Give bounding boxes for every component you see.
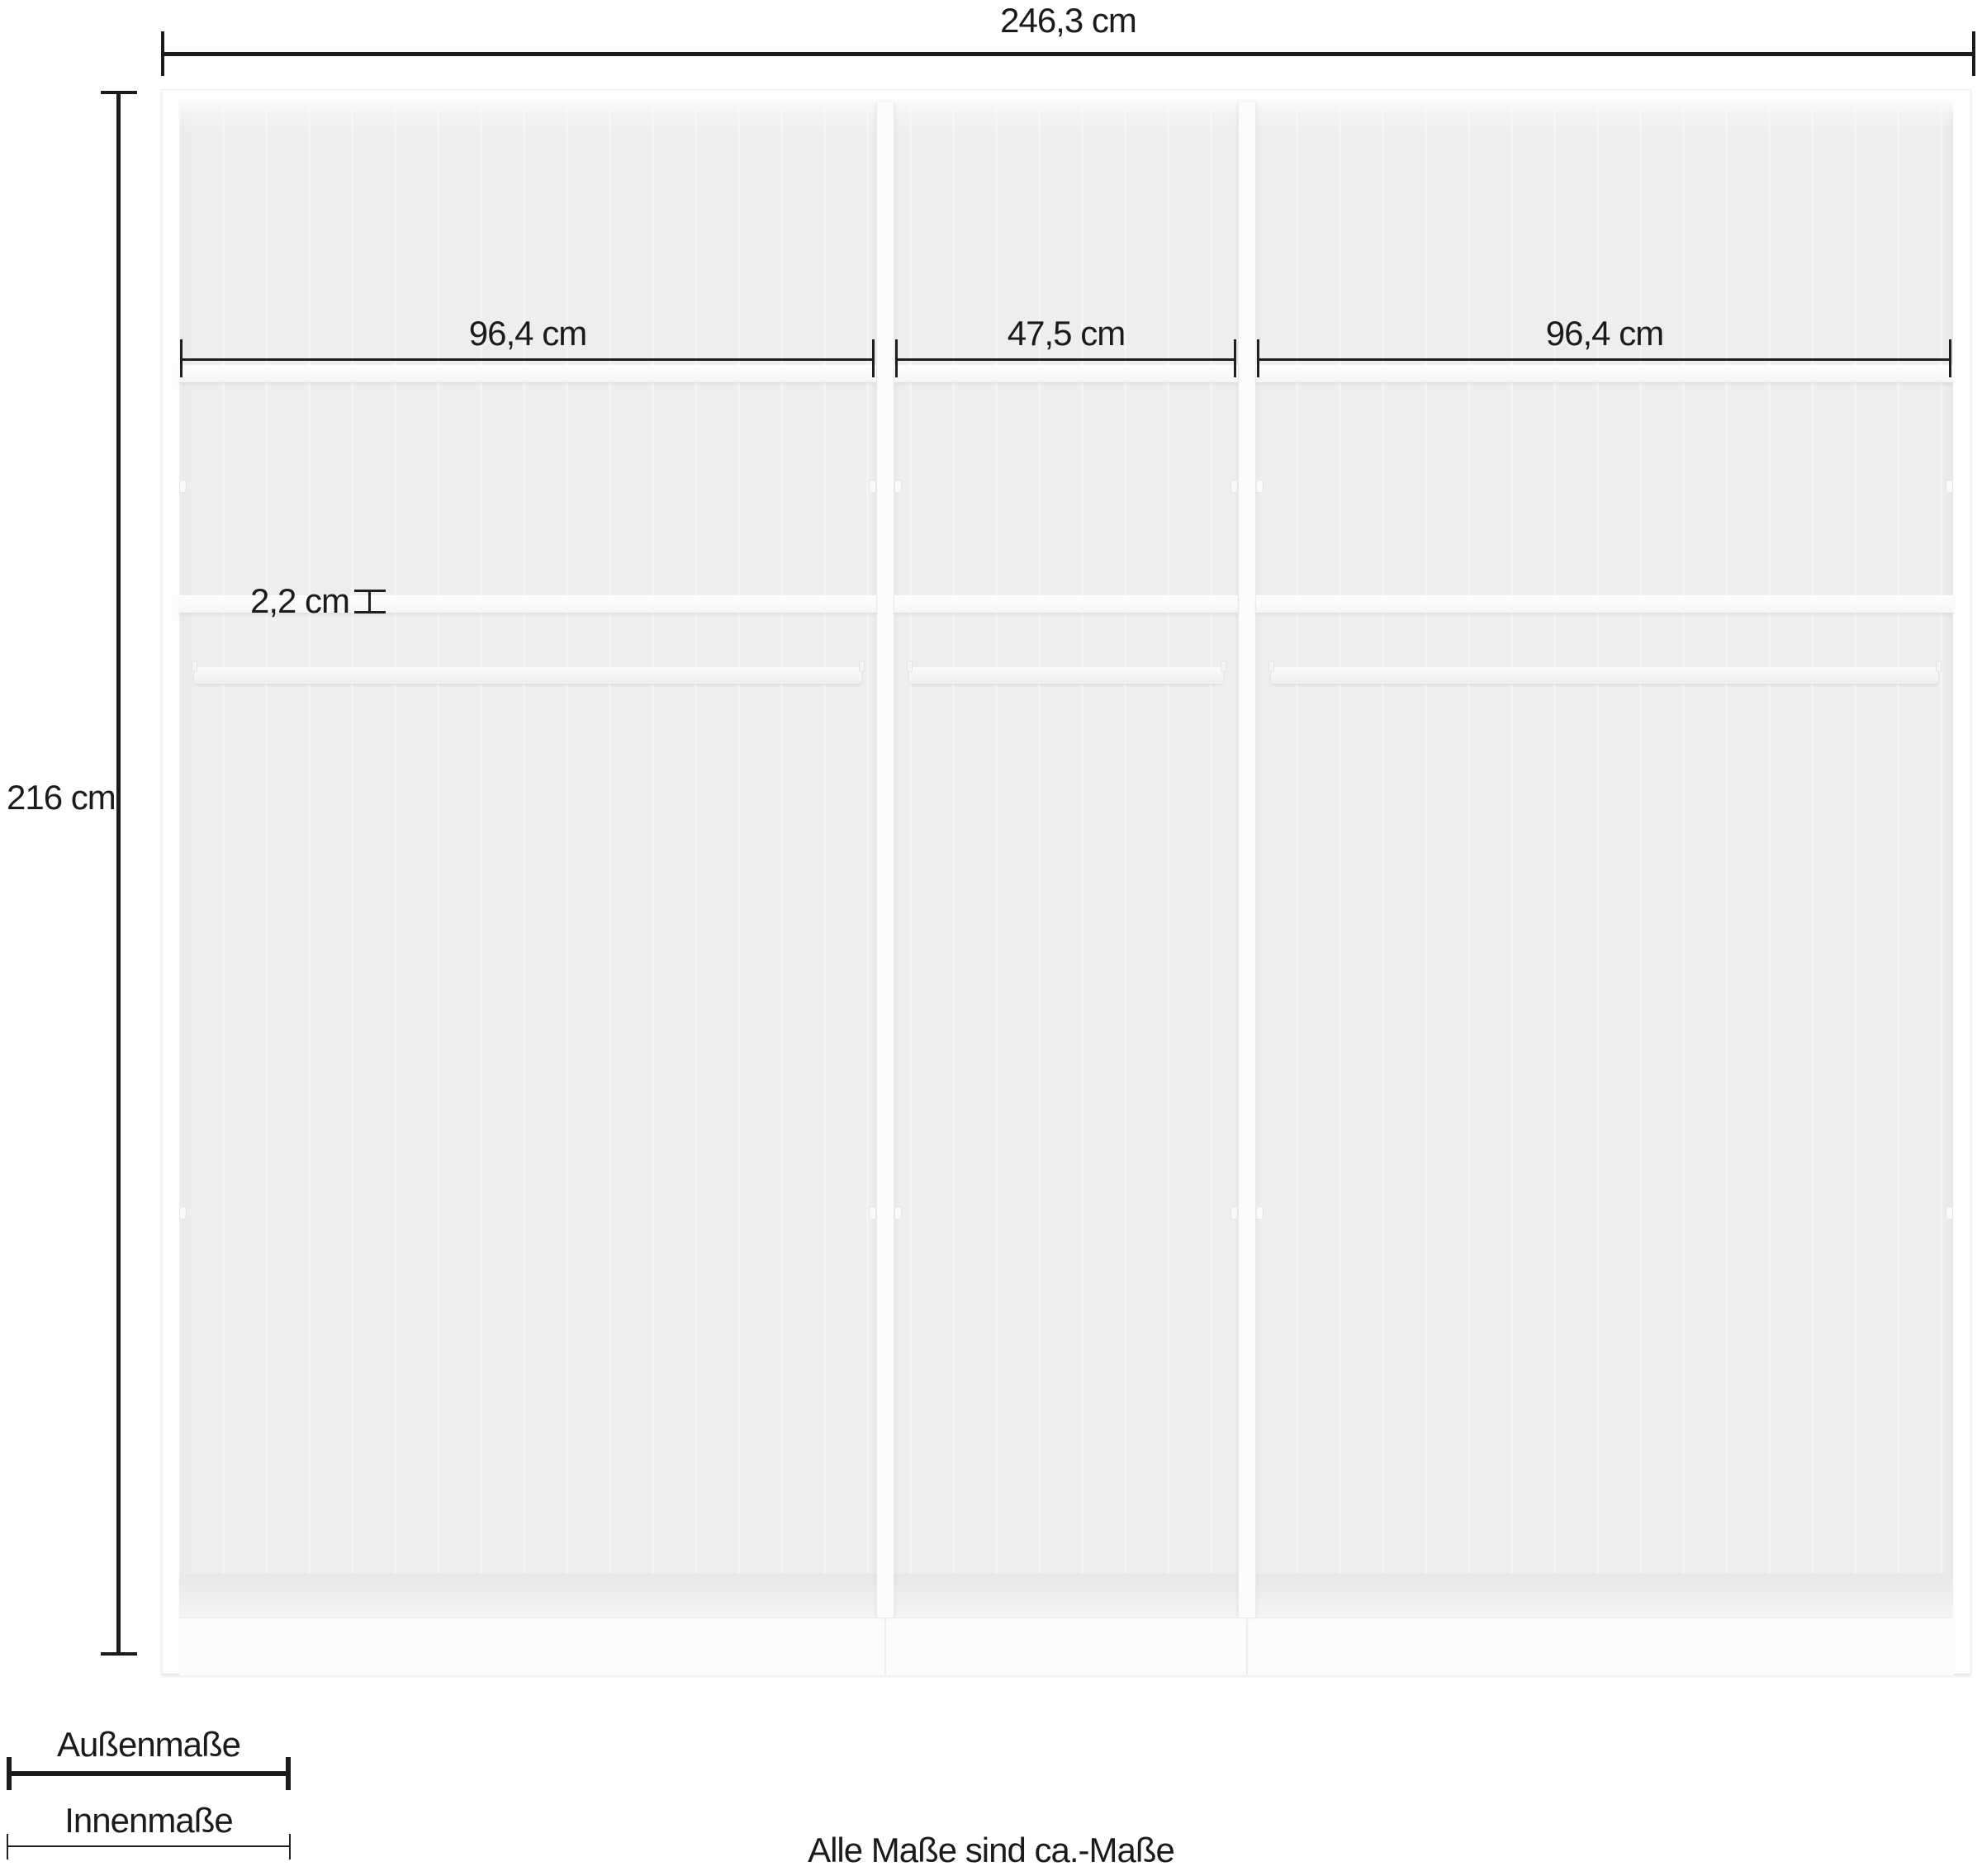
divider-panel-left	[876, 102, 894, 1618]
interior-floor-panel	[179, 1574, 1953, 1618]
dimension-tick-bottom	[101, 1652, 137, 1656]
divider-panel-right	[1238, 102, 1256, 1618]
shelf-pin	[869, 480, 876, 493]
shelf-pin	[894, 1206, 902, 1220]
top-shelf-right	[1256, 365, 1953, 382]
dimension-tick-top	[101, 91, 137, 94]
dimension-tick-left	[161, 31, 164, 76]
shelf-pin	[869, 1206, 876, 1220]
rail-bracket	[192, 661, 197, 672]
legend-inner-line	[7, 1845, 291, 1847]
shelf-pin	[1230, 1206, 1238, 1220]
legend-outer-tick-right	[286, 1757, 291, 1790]
inner-width-label-right: 96,4 cm	[1256, 315, 1953, 353]
wardrobe-body: 96,4 cm 47,5 cm 96,4 cm 2,2 cm	[161, 89, 1971, 1675]
inner-width-label-left: 96,4 cm	[179, 315, 876, 353]
outer-width-dimension-line	[161, 52, 1975, 56]
inner-tick	[1234, 339, 1236, 377]
rail-bracket	[859, 661, 865, 672]
inner-tick	[1257, 339, 1259, 377]
legend-inner-tick-right	[289, 1834, 291, 1859]
top-shelf-left	[179, 365, 876, 382]
shelf-pin	[1946, 1206, 1953, 1220]
rail-bracket	[907, 661, 913, 672]
shelf-pin	[894, 480, 902, 493]
outer-height-label: 216 cm	[7, 779, 116, 817]
middle-shelf-middle	[894, 595, 1238, 613]
inner-tick	[895, 339, 898, 377]
divider-seam-left	[884, 1618, 886, 1675]
middle-shelf-right	[1256, 595, 1953, 613]
shelf-pin	[1256, 1206, 1264, 1220]
inner-width-line-middle	[897, 358, 1235, 361]
inner-width-line-left	[182, 358, 874, 361]
legend-outer-label: Außenmaße	[0, 1726, 297, 1764]
shelf-thickness-marker	[354, 590, 386, 613]
wardrobe-dimension-diagram: 246,3 cm 216 cm	[0, 0, 1982, 1876]
legend: Außenmaße Innenmaße	[0, 1726, 347, 1874]
rail-bracket	[1221, 661, 1226, 672]
shelf-pin	[1230, 480, 1238, 493]
top-shelf-middle	[894, 365, 1238, 382]
legend-inner-label: Innenmaße	[0, 1802, 297, 1840]
inner-width-label-middle: 47,5 cm	[894, 315, 1238, 353]
shelf-pin	[179, 480, 187, 493]
shelf-pin	[1256, 480, 1264, 493]
shelf-pin	[179, 1206, 187, 1220]
shelf-pin	[1946, 480, 1953, 493]
outer-width-label: 246,3 cm	[161, 2, 1975, 40]
shelf-thickness-label: 2,2 cm	[250, 582, 349, 620]
rail-bracket	[1268, 661, 1274, 672]
legend-outer-tick-left	[7, 1757, 12, 1790]
outer-height-dimension: 216 cm	[0, 89, 157, 1658]
dimension-tick-right	[1972, 31, 1975, 76]
divider-seam-right	[1246, 1618, 1248, 1675]
clothes-rail-left	[194, 667, 861, 684]
outer-height-dimension-line	[116, 92, 121, 1654]
interior-top-highlight	[179, 102, 1953, 130]
plinth-panel	[179, 1618, 1953, 1675]
inner-width-line-right	[1259, 358, 1951, 361]
outer-width-dimension: 246,3 cm	[161, 0, 1975, 83]
inner-tick	[180, 339, 183, 377]
inner-tick	[1949, 339, 1951, 377]
inner-tick	[872, 339, 875, 377]
rail-bracket	[1936, 661, 1942, 672]
legend-inner-tick-left	[7, 1834, 8, 1859]
footnote: Alle Maße sind ca.-Maße	[578, 1831, 1404, 1869]
clothes-rail-right	[1271, 667, 1938, 684]
legend-outer-line	[7, 1771, 291, 1776]
clothes-rail-middle	[909, 667, 1223, 684]
